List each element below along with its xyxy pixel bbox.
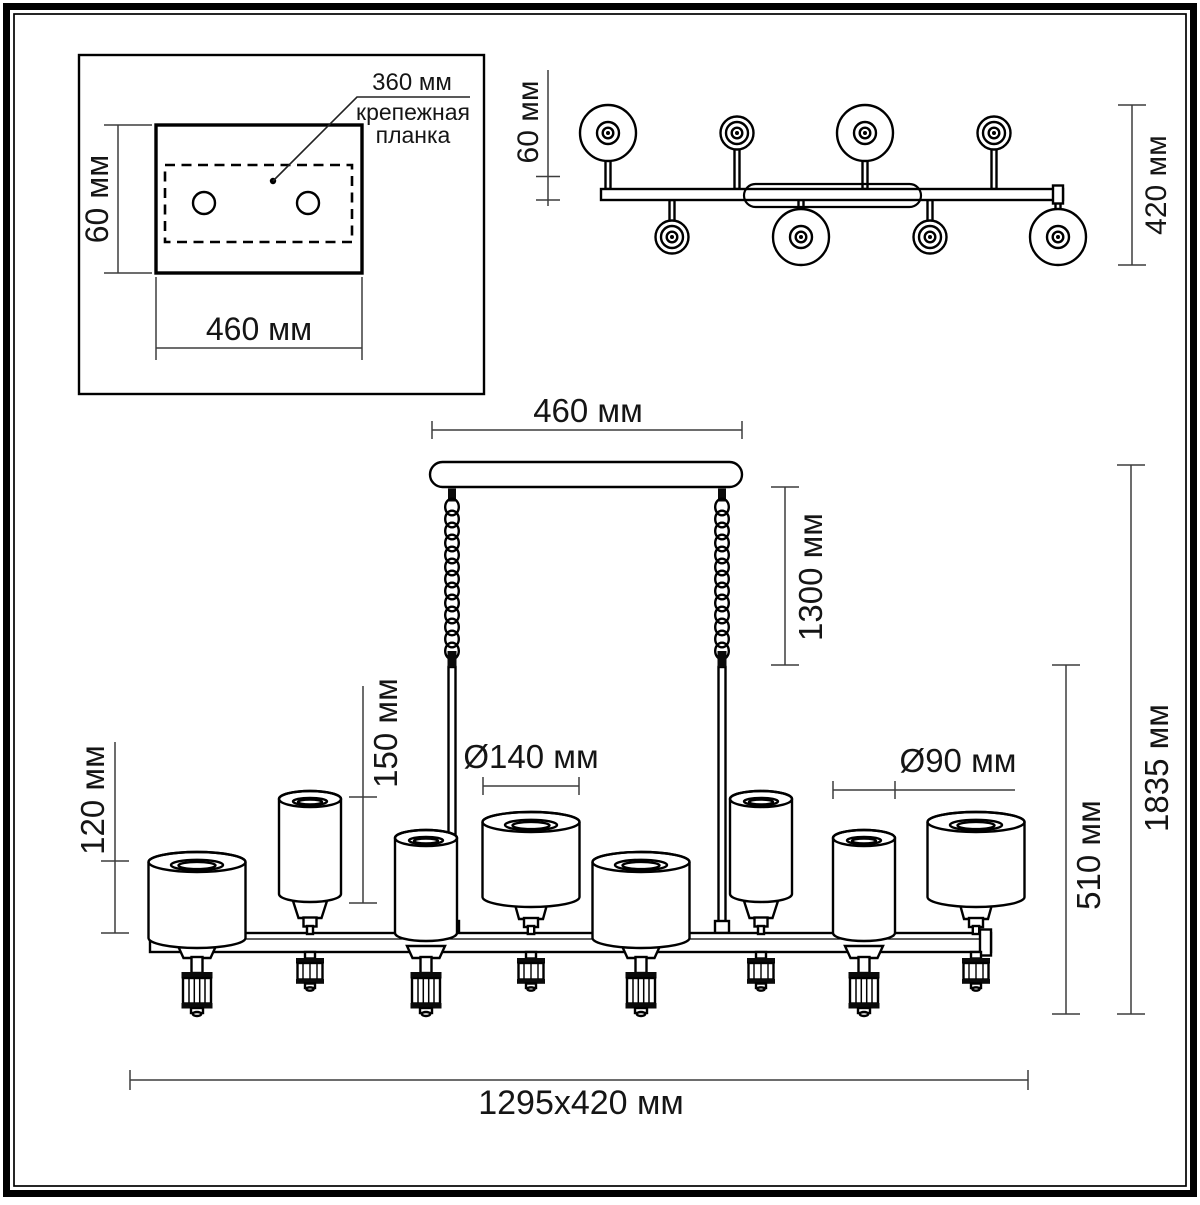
inset-height-dimension: 60 мм <box>79 125 152 273</box>
lamp-5-drum-shade <box>593 852 690 958</box>
hang-rod-right <box>719 667 726 933</box>
top-view-lamp-small-4 <box>978 117 1011 150</box>
socket-2 <box>296 952 324 991</box>
top-view-bar-dimension: 60 мм <box>512 70 560 206</box>
suspension-length-label: 1300 мм <box>792 513 829 641</box>
top-view-depth-label: 420 мм <box>1140 135 1173 235</box>
drum-diameter-dimension: Ø140 мм <box>463 738 598 795</box>
top-view-lamp-small-2 <box>721 117 754 150</box>
body-height-dimension: 510 мм <box>1052 665 1107 1014</box>
drum-height-dimension: 120 мм <box>74 742 129 933</box>
technical-drawing-page: 360 мм крепежная планка 60 мм 460 мм <box>0 0 1200 1200</box>
mounting-strip-length-label: 360 мм <box>372 69 452 96</box>
overall-size-dimension: 1295x420 мм <box>130 1070 1028 1122</box>
canopy-width-label: 460 мм <box>533 392 643 429</box>
drum-height-label: 120 мм <box>74 745 111 855</box>
page-border <box>7 7 1194 1194</box>
canopy-outline <box>156 125 362 273</box>
top-view-lamp-large-3 <box>837 105 893 161</box>
total-height-label: 1835 мм <box>1138 704 1175 832</box>
chain-left <box>445 489 459 668</box>
overall-size-label: 1295x420 мм <box>478 1084 684 1122</box>
lamp-3-cylinder-shade <box>395 830 457 958</box>
socket-7 <box>849 957 880 1016</box>
drum-diameter-label: Ø140 мм <box>463 738 598 775</box>
canopy-width-dimension: 460 мм <box>432 392 742 439</box>
socket-3 <box>411 957 442 1016</box>
top-view-lamp-large-1 <box>580 105 636 161</box>
suspension-dimension: 1300 мм <box>771 487 829 665</box>
socket-5 <box>626 957 657 1016</box>
mounting-plate-inset: 360 мм крепежная планка 60 мм 460 мм <box>79 55 484 394</box>
front-canopy <box>430 462 742 487</box>
top-view: 60 мм 420 мм <box>512 70 1173 265</box>
chain-right <box>715 489 729 668</box>
socket-1 <box>182 957 213 1016</box>
top-view-lamp-large-8 <box>1030 209 1086 265</box>
front-view: 460 мм 1300 мм <box>74 392 1175 1122</box>
socket-6 <box>747 952 775 991</box>
lamp-7-cylinder-shade <box>833 830 895 958</box>
socket-4 <box>517 952 545 991</box>
mounting-hole-right <box>297 192 319 214</box>
top-view-bar-endcap <box>1053 186 1063 204</box>
top-view-lamp-small-7 <box>914 221 947 254</box>
rod-bar-joint-right <box>715 921 729 933</box>
inset-width-dimension: 460 мм <box>156 277 362 360</box>
top-view-lamp-small-5 <box>656 221 689 254</box>
top-view-lamp-large-6 <box>773 209 829 265</box>
lamp-4-drum-shade <box>483 812 580 934</box>
lamp-2-cylinder-shade <box>279 791 341 934</box>
top-view-bar <box>601 189 1063 200</box>
mounting-hole-left <box>193 192 215 214</box>
drawing-canvas: 360 мм крепежная планка 60 мм 460 мм <box>0 0 1200 1200</box>
top-view-depth-dimension: 420 мм <box>1118 105 1173 265</box>
cylinder-diameter-dimension: Ø90 мм <box>833 742 1016 799</box>
lamp-8-drum-shade <box>928 812 1025 934</box>
cylinder-diameter-label: Ø90 мм <box>900 742 1017 779</box>
body-height-label: 510 мм <box>1070 800 1107 910</box>
total-height-dimension: 1835 мм <box>1117 465 1175 1014</box>
lamp-6-cylinder-shade <box>730 791 792 934</box>
lamp-1-drum-shade <box>149 852 246 958</box>
cylinder-height-label: 150 мм <box>367 678 404 788</box>
socket-8 <box>962 952 990 991</box>
inset-width-label: 460 мм <box>206 311 312 347</box>
top-view-bar-thickness-label: 60 мм <box>512 81 545 164</box>
mounting-strip-name-line2: планка <box>376 122 451 148</box>
inset-height-label: 60 мм <box>79 155 115 243</box>
